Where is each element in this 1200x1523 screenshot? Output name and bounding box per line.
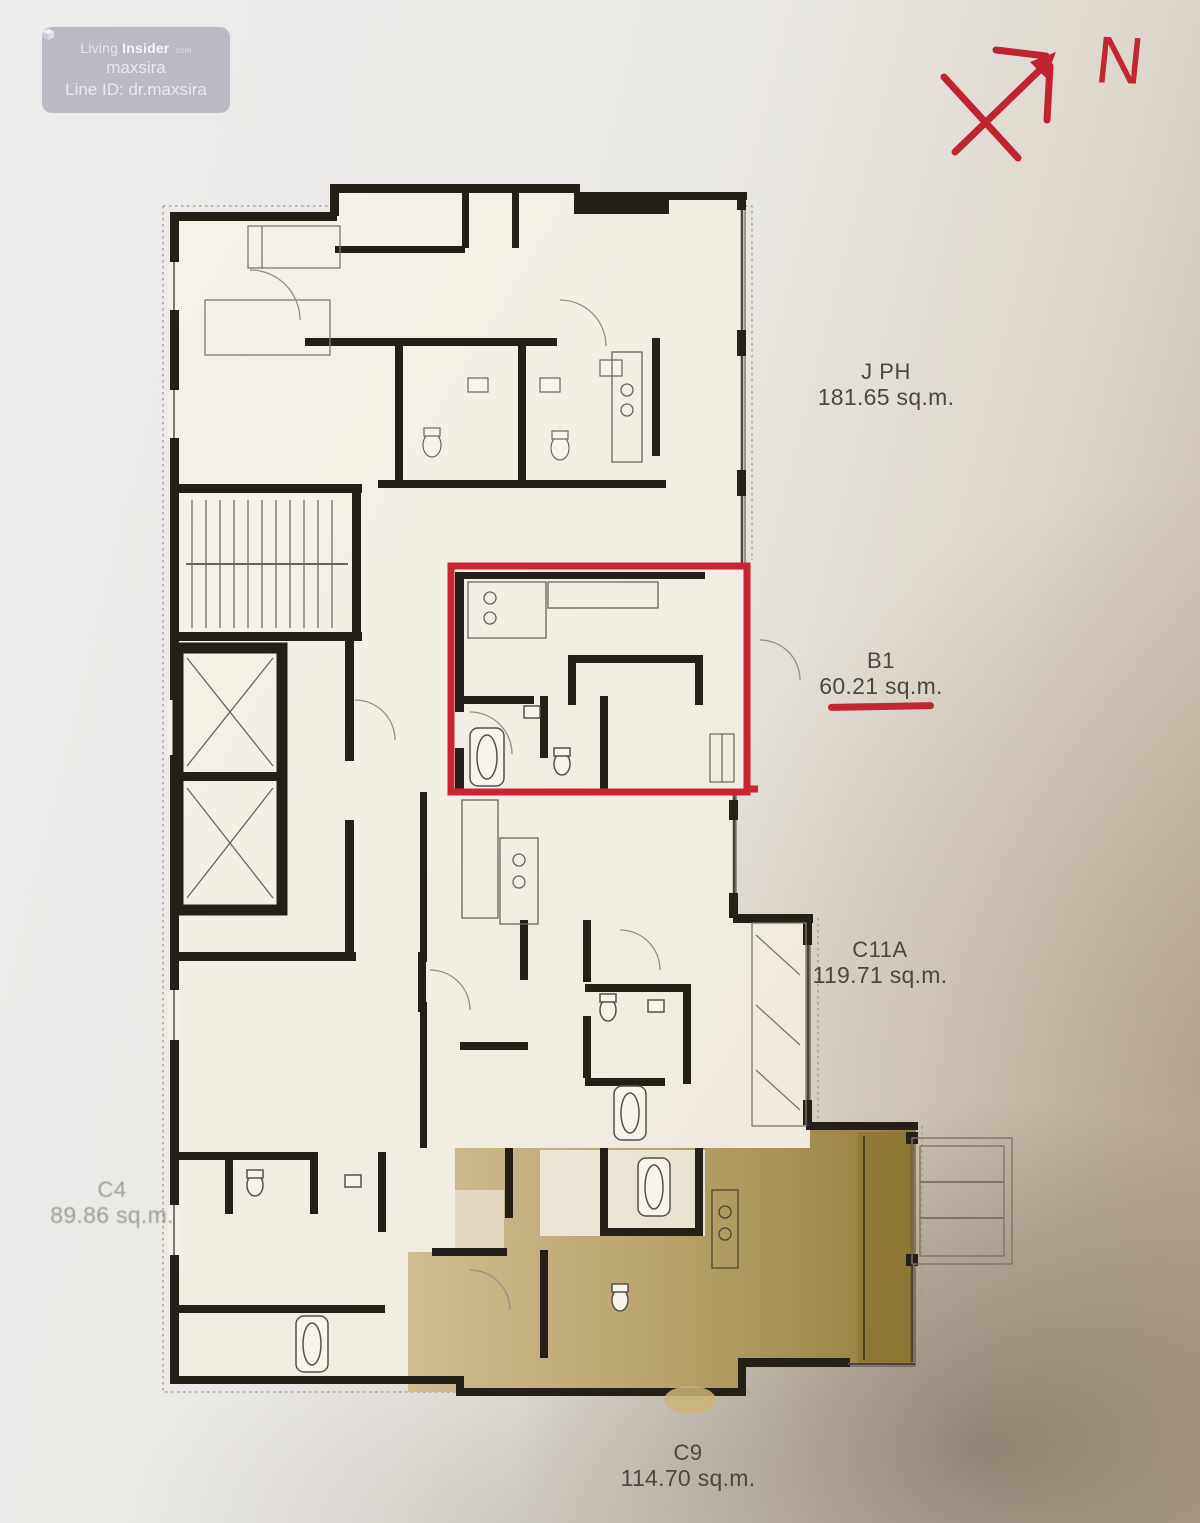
brand-insider: Insider: [122, 40, 169, 56]
floorplan-drawing: [0, 0, 1200, 1523]
brand-living: Living: [80, 40, 118, 56]
tan-spot: [664, 1386, 716, 1414]
north-arrow-icon: [944, 50, 1056, 158]
unit-area: 119.71 sq.m.: [795, 962, 965, 989]
north-label: N: [1092, 21, 1147, 99]
unit-name: C11A: [795, 938, 965, 962]
watermark-brand: LivingInsider.com: [80, 40, 191, 56]
unit-name: C9: [603, 1441, 773, 1465]
unit-area: 181.65 sq.m.: [801, 384, 971, 411]
watermark-line-id: Line ID: dr.maxsira: [65, 80, 207, 100]
brand-tld: .com: [173, 46, 191, 55]
unit-label-c11a: C11A 119.71 sq.m.: [795, 938, 965, 989]
unit-area: 60.21 sq.m.: [796, 673, 966, 700]
watermark-badge: LivingInsider.com maxsira Line ID: dr.ma…: [42, 27, 230, 113]
unit-label-jph: J PH 181.65 sq.m.: [801, 360, 971, 411]
unit-label-c4: C4 89.86 sq.m.: [27, 1178, 197, 1229]
unit-area: 114.70 sq.m.: [603, 1465, 773, 1492]
cube-logo-icon: [42, 28, 55, 41]
floorplan-photo: LivingInsider.com maxsira Line ID: dr.ma…: [0, 0, 1200, 1523]
unit-name: C4: [27, 1178, 197, 1202]
terrace-grid: [912, 1138, 1012, 1362]
unit-label-b1: B1 60.21 sq.m.: [796, 649, 966, 700]
watermark-username: maxsira: [106, 58, 166, 78]
unit-area: 89.86 sq.m.: [27, 1202, 197, 1229]
unit-name: J PH: [801, 360, 971, 384]
unit-name: B1: [796, 649, 966, 673]
unit-label-c9: C9 114.70 sq.m.: [603, 1441, 773, 1492]
